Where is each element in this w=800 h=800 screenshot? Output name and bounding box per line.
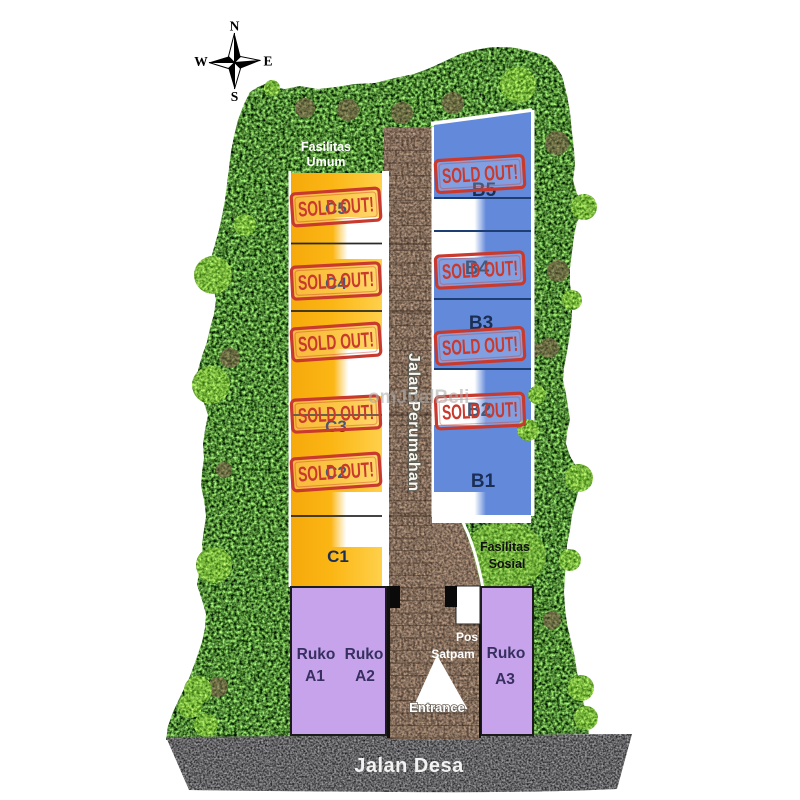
svg-text:A1: A1 <box>305 668 325 685</box>
svg-text:E: E <box>263 54 272 69</box>
svg-text:A2: A2 <box>355 668 375 685</box>
svg-text:B1: B1 <box>471 471 496 492</box>
svg-text:Pos: Pos <box>456 630 478 644</box>
svg-text:Ruko: Ruko <box>297 646 336 663</box>
svg-text:Entrance: Entrance <box>409 700 465 715</box>
svg-text:A3: A3 <box>495 671 515 688</box>
svg-text:Jalan Desa: Jalan Desa <box>354 755 464 777</box>
svg-text:C1: C1 <box>327 547 349 566</box>
svg-text:Ruko: Ruko <box>345 646 384 663</box>
svg-text:Satpam: Satpam <box>431 647 474 661</box>
svg-text:Umum: Umum <box>307 155 346 169</box>
svg-text:W: W <box>194 54 208 69</box>
svg-text:Jalan Perumahan: Jalan Perumahan <box>405 353 422 492</box>
svg-text:Sosial: Sosial <box>489 557 526 571</box>
svg-text:Fasilitas: Fasilitas <box>301 140 351 154</box>
svg-text:N: N <box>230 19 240 34</box>
svg-text:S: S <box>231 89 239 104</box>
svg-text:Fasilitas: Fasilitas <box>480 540 530 554</box>
svg-text:omJualBeli: omJualBeli <box>368 387 469 408</box>
svg-text:Ruko: Ruko <box>487 645 526 662</box>
